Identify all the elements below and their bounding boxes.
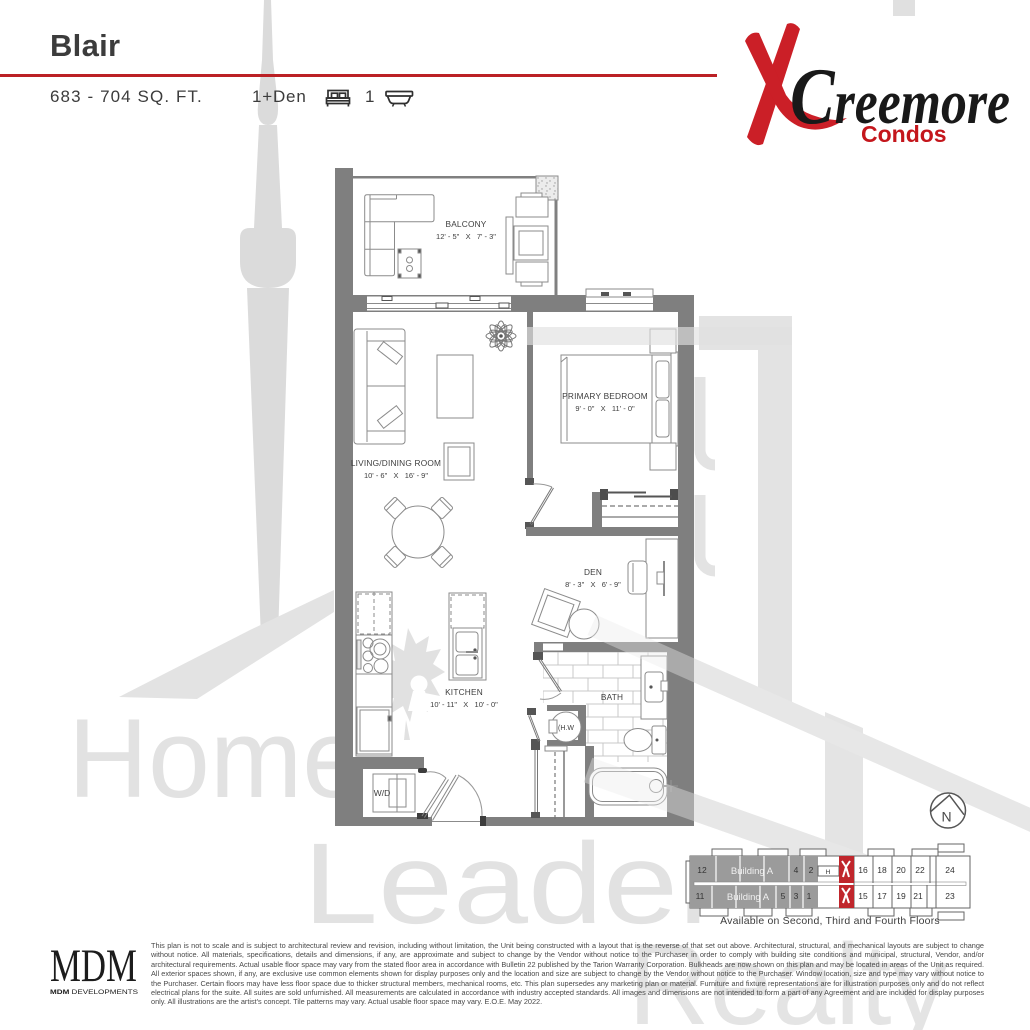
svg-text:Condos: Condos [861, 121, 947, 147]
svg-text:Home: Home [68, 696, 364, 821]
svg-text:MDM DEVELOPMENTS: MDM DEVELOPMENTS [50, 989, 139, 996]
svg-text:21: 21 [913, 891, 923, 901]
svg-text:(H.W: (H.W [558, 725, 574, 732]
svg-text:1: 1 [807, 891, 812, 901]
svg-text:3: 3 [794, 891, 799, 901]
svg-text:DEN: DEN [584, 567, 602, 577]
svg-text:MDM: MDM [50, 940, 137, 992]
svg-text:KITCHEN: KITCHEN [445, 687, 483, 697]
svg-text:12' - 5" X 7' - 3": 12' - 5" X 7' - 3" [436, 232, 496, 241]
svg-text:10' - 6" X 16' - 9": 10' - 6" X 16' - 9" [364, 471, 428, 480]
svg-text:W/D: W/D [374, 788, 391, 798]
svg-text:20: 20 [896, 865, 906, 875]
svg-text:15: 15 [858, 891, 868, 901]
svg-text:10' - 11" X 10' - 0": 10' - 11" X 10' - 0" [430, 700, 498, 709]
svg-text:12: 12 [697, 865, 707, 875]
svg-text:Building A: Building A [727, 892, 770, 903]
svg-text:N: N [942, 809, 952, 825]
svg-text:17: 17 [877, 891, 887, 901]
svg-text:8' - 3" X 6' - 9": 8' - 3" X 6' - 9" [565, 580, 621, 589]
svg-text:BALCONY: BALCONY [445, 219, 486, 229]
svg-text:18: 18 [877, 865, 887, 875]
svg-text:16: 16 [858, 865, 868, 875]
svg-text:Building A: Building A [731, 866, 774, 877]
svg-text:24: 24 [945, 865, 955, 875]
svg-text:9' - 0" X 11' - 0": 9' - 0" X 11' - 0" [575, 404, 635, 413]
svg-text:PRIMARY BEDROOM: PRIMARY BEDROOM [562, 391, 648, 401]
svg-text:11: 11 [696, 891, 705, 901]
svg-text:23: 23 [945, 891, 955, 901]
svg-text:5: 5 [781, 891, 786, 901]
svg-text:2: 2 [809, 865, 814, 875]
svg-text:22: 22 [915, 865, 925, 875]
svg-text:H: H [826, 869, 831, 876]
svg-text:LIVING/DINING ROOM: LIVING/DINING ROOM [351, 458, 441, 468]
svg-text:4: 4 [794, 865, 799, 875]
svg-text:19: 19 [896, 891, 906, 901]
svg-text:BATH: BATH [601, 692, 623, 702]
